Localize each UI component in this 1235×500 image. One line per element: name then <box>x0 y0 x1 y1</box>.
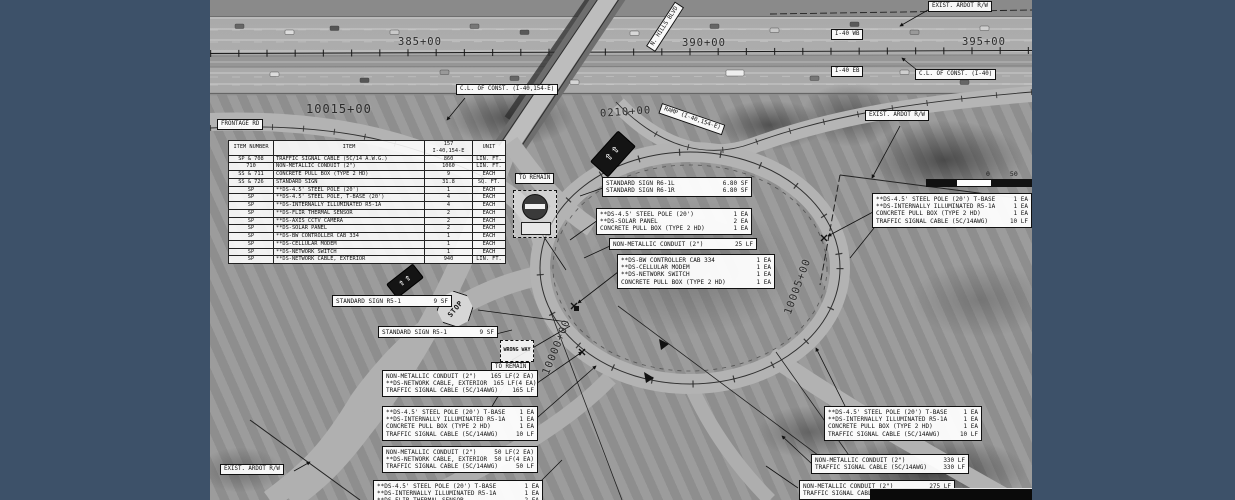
callout-line: CONCRETE PULL BOX (TYPE 2 HD)1 EA <box>600 225 748 232</box>
callout-pole-se: **DS-4.5' STEEL POLE (20') T-BASE1 EA**D… <box>824 406 982 441</box>
col-job: 157 I-40,154-E <box>425 141 473 156</box>
label-cl-const-154e: C.L. OF CONST. (I-40,154-E) <box>456 84 558 95</box>
col-unit: UNIT <box>473 141 506 156</box>
label-i40-wb: I-40 WB <box>831 29 863 40</box>
callout-line: STANDARD SIGN R5-19 SF <box>382 329 494 336</box>
label-to-remain-ramp: TO REMAIN <box>515 173 554 184</box>
table-row: SP**DS-4.5' STEEL POLE (20')1EACH <box>229 186 506 194</box>
callout-standard-sign-r6: STANDARD SIGN R6-1L6.80 SFSTANDARD SIGN … <box>602 177 752 197</box>
scale-zero: 0 <box>986 170 990 178</box>
table-row: SP**DS-CELLULAR MODEM1EACH <box>229 240 506 248</box>
callout-line: CONCRETE PULL BOX (TYPE 2 HD)1 EA <box>621 279 771 286</box>
station-395: 395+00 <box>962 36 1006 48</box>
scale-bar-segments <box>926 179 1032 187</box>
callout-line: TRAFFIC SIGNAL CABLE (5C/14AWG)50 LF <box>386 463 534 470</box>
callout-line: **DS-NETWORK CABLE, EXTERIOR50 LF(4 EA) <box>386 456 534 463</box>
table-row: SP**DS-SOLAR PANEL2EACH <box>229 225 506 233</box>
callout-line: **DS-CELLULAR MODEM1 EA <box>621 264 771 271</box>
table-row: SP**DS-4.5' STEEL POLE, T-BASE (20')4EAC… <box>229 194 506 202</box>
callout-line: STANDARD SIGN R6-1L6.80 SF <box>606 180 748 187</box>
callout-conduit-330: NON-METALLIC CONDUIT (2")330 LFTRAFFIC S… <box>811 454 969 474</box>
do-not-enter-bar <box>525 204 545 209</box>
sheet-frame: 385+00 390+00 395+00 10015+00 0210+00 10… <box>0 0 1235 500</box>
table-row: 710NON-METALLIC CONDUIT (2")1060LIN. FT. <box>229 163 506 171</box>
callout-conduit-50: NON-METALLIC CONDUIT (2")50 LF(2 EA)**DS… <box>382 446 538 473</box>
callout-line: CONCRETE PULL BOX (TYPE 2 HD)1 EA <box>876 210 1028 217</box>
callout-line: CONCRETE PULL BOX (TYPE 2 HD)1 EA <box>828 423 978 430</box>
label-exist-ardot-rw-top: EXIST. ARDOT R/W <box>928 1 992 12</box>
callout-line: TRAFFIC SIGNAL CABLE (5C/14AWG)330 LF <box>815 464 965 471</box>
callout-pole-sw: **DS-4.5' STEEL POLE (20') T-BASE1 EA**D… <box>382 406 538 441</box>
wrong-way-sign: WRONG WAY <box>500 340 534 362</box>
do-not-enter-plaque <box>521 222 551 235</box>
callout-line: NON-METALLIC CONDUIT (2")330 LF <box>815 457 965 464</box>
station-390: 390+00 <box>682 37 726 49</box>
callout-line: NON-METALLIC CONDUIT (2")25 LF <box>613 241 753 248</box>
graphic-scale-bar: 0 50 <box>926 170 1032 187</box>
callout-pole-flir: **DS-4.5' STEEL POLE (20') T-BASE1 EA**D… <box>373 480 543 500</box>
label-exist-ardot-rw-bottom: EXIST. ARDOT R/W <box>220 464 284 475</box>
callout-line: STANDARD SIGN R5-19 SF <box>336 298 448 305</box>
callout-pole-east: **DS-4.5' STEEL POLE (20') T-BASE1 EA**D… <box>872 193 1032 228</box>
label-frontage-rd: FRONTAGE RD <box>217 119 263 130</box>
callout-line: **DS-4.5' STEEL POLE (20') T-BASE1 EA <box>386 409 534 416</box>
label-exist-ardot-rw-right: EXIST. ARDOT R/W <box>865 110 929 121</box>
callout-line: **DS-4.5' STEEL POLE (20') T-BASE1 EA <box>828 409 978 416</box>
table-header-row: ITEM NUMBER ITEM 157 I-40,154-E UNIT <box>229 141 506 156</box>
table-row: SP**DS-INTERNALLY ILLUMINATED R5-1A4EACH <box>229 202 506 210</box>
callout-conduit-25: NON-METALLIC CONDUIT (2")25 LF <box>609 238 757 250</box>
col-item-number: ITEM NUMBER <box>229 141 274 156</box>
do-not-enter-sign <box>513 190 557 238</box>
table-row: SP**DS-AXIS CCTV CAMERA2EACH <box>229 217 506 225</box>
table-row: SP**DS-NETWORK SWITCH1EACH <box>229 248 506 256</box>
table-row: SS & 711CONCRETE PULL BOX (TYPE 2 HD)9EA… <box>229 171 506 179</box>
callout-line: **DS-SOLAR PANEL2 EA <box>600 218 748 225</box>
callout-line: NON-METALLIC CONDUIT (2")50 LF(2 EA) <box>386 449 534 456</box>
callout-line: CONCRETE PULL BOX (TYPE 2 HD)1 EA <box>386 423 534 430</box>
callout-line: TRAFFIC SIGNAL CABLE (5C/14AWG)10 LF <box>876 218 1028 225</box>
callout-line: NON-METALLIC CONDUIT (2")165 LF(2 EA) <box>386 373 534 380</box>
quantity-table: ITEM NUMBER ITEM 157 I-40,154-E UNIT SP … <box>228 140 506 264</box>
station-385: 385+00 <box>398 36 442 48</box>
table-row: SP & 708TRAFFIC SIGNAL CABLE (5C/14 A.W.… <box>229 155 506 163</box>
callout-line: **DS-INTERNALLY ILLUMINATED R5-1A1 EA <box>377 490 539 497</box>
callout-standard-sign-r5-b: STANDARD SIGN R5-19 SF <box>378 326 498 338</box>
table-row: SS & 726STANDARD SIGN31.8SQ. FT. <box>229 178 506 186</box>
callout-line: TRAFFIC SIGNAL CABLE (5C/14AWG)10 LF <box>828 431 978 438</box>
callout-line: STANDARD SIGN R6-1R6.80 SF <box>606 187 748 194</box>
sheet-edge-bar <box>870 488 1032 500</box>
callout-standard-sign-r5-a: STANDARD SIGN R5-19 SF <box>332 295 452 307</box>
callout-line: TRAFFIC SIGNAL CABLE (5C/14AWG)10 LF <box>386 431 534 438</box>
label-i40-eb: I-40 EB <box>831 66 863 77</box>
table-row: SP**DS-BW CONTROLLER CAB 3341EACH <box>229 233 506 241</box>
callout-line: **DS-4.5' STEEL POLE (20') T-BASE1 EA <box>876 196 1028 203</box>
callout-line: **DS-BW CONTROLLER CAB 3341 EA <box>621 257 771 264</box>
callout-conduit-165: NON-METALLIC CONDUIT (2")165 LF(2 EA)**D… <box>382 370 538 397</box>
callout-line: **DS-4.5' STEEL POLE (20')1 EA <box>600 211 748 218</box>
callout-line: **DS-4.5' STEEL POLE (20') T-BASE1 EA <box>377 483 539 490</box>
table-row: SP**DS-FLIR THERMAL SENSOR2EACH <box>229 209 506 217</box>
callout-line: TRAFFIC SIGNAL CABLE (5C/14AWG)165 LF <box>386 387 534 394</box>
callout-controller-cabinet: **DS-BW CONTROLLER CAB 3341 EA**DS-CELLU… <box>617 254 775 289</box>
callout-line: **DS-INTERNALLY ILLUMINATED R5-1A1 EA <box>828 416 978 423</box>
callout-line: **DS-NETWORK CABLE, EXTERIOR165 LF(4 EA) <box>386 380 534 387</box>
label-cl-const-i40: C.L. OF CONST. (I-40) <box>915 69 996 80</box>
callout-line: **DS-INTERNALLY ILLUMINATED R5-1A1 EA <box>876 203 1028 210</box>
table-row: SP**DS-NETWORK CABLE, EXTERIOR940LIN. FT… <box>229 256 506 264</box>
plan-sheet: 385+00 390+00 395+00 10015+00 0210+00 10… <box>210 0 1032 500</box>
station-10015: 10015+00 <box>306 102 372 116</box>
callout-line: **DS-INTERNALLY ILLUMINATED R5-1A1 EA <box>386 416 534 423</box>
callout-line: **DS-NETWORK SWITCH1 EA <box>621 271 771 278</box>
scale-fifty: 50 <box>1010 170 1018 178</box>
col-item: ITEM <box>274 141 425 156</box>
callout-pole-solar: **DS-4.5' STEEL POLE (20')1 EA**DS-SOLAR… <box>596 208 752 235</box>
